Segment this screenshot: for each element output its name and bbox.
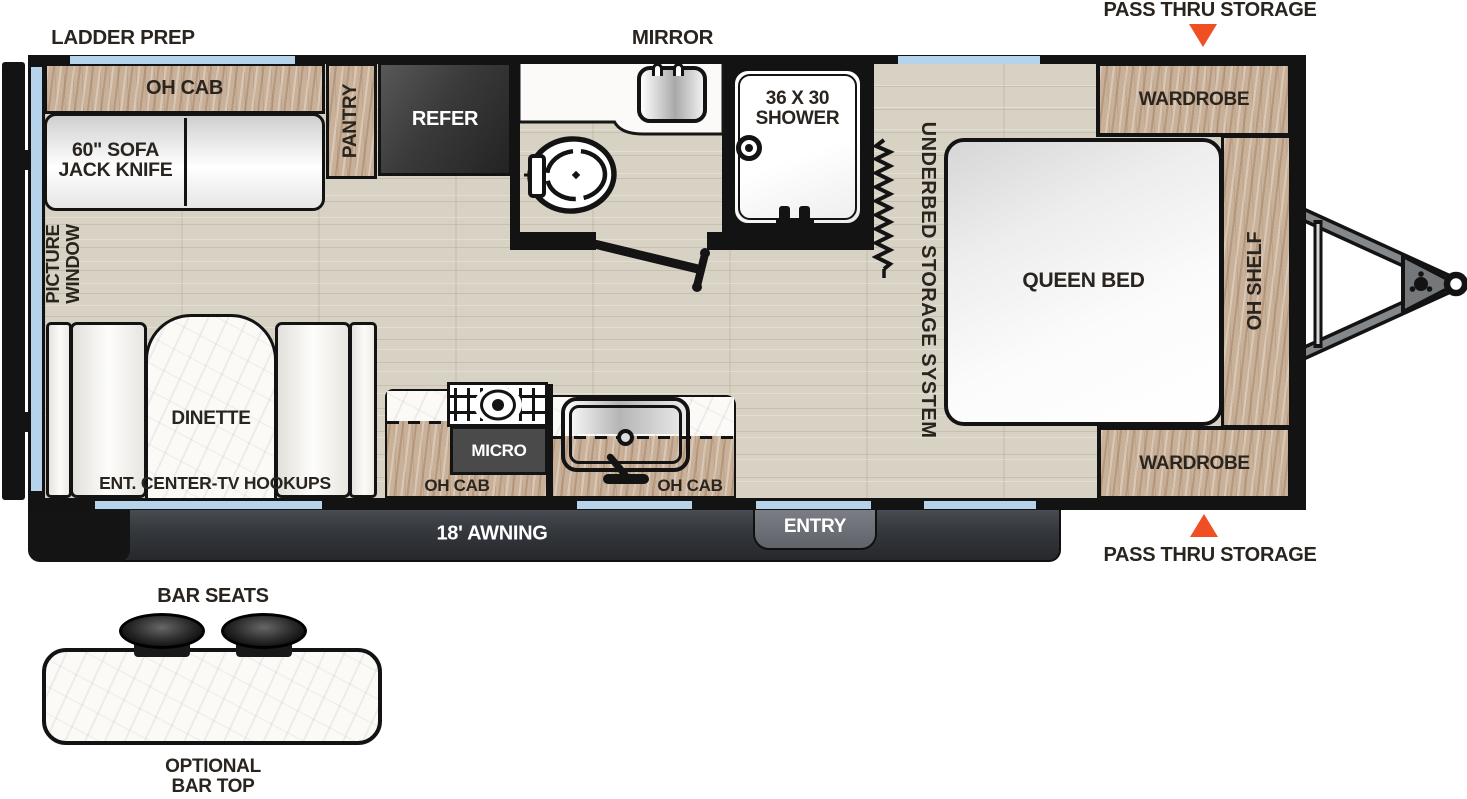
picture-window-label: PICTUREWINDOW xyxy=(43,204,85,324)
dinette-seat-left xyxy=(70,322,147,498)
window-strip xyxy=(70,56,295,64)
wall-right xyxy=(1291,55,1306,510)
microwave: MICRO xyxy=(450,426,548,475)
privacy-curtain-icon xyxy=(872,138,896,280)
wardrobe-label: WARDROBE xyxy=(1101,454,1288,474)
dinette-seat-right xyxy=(275,322,351,498)
pass-thru-arrow-icon xyxy=(1189,24,1217,47)
oh-cab-right-label: OH CAB xyxy=(650,477,730,495)
bath-faucet-icon xyxy=(652,63,663,76)
queen-bed: QUEEN BED xyxy=(944,138,1223,426)
mirror-label: MIRROR xyxy=(595,27,750,49)
awning-bar: 18' AWNING xyxy=(45,506,1061,562)
window-strip xyxy=(95,501,322,509)
micro-label: MICRO xyxy=(453,442,545,460)
underbed-storage-label: UNDERBED STORAGE SYSTEM xyxy=(914,115,938,445)
bar-stool xyxy=(221,613,307,649)
rear-bumper xyxy=(2,62,25,500)
sofa-label: 60" SOFAJACK KNIFE xyxy=(47,140,184,181)
optional-bar-top-label: OPTIONALBAR TOP xyxy=(120,757,306,797)
door-handle-knob-icon xyxy=(692,282,702,292)
window-strip xyxy=(924,501,1036,509)
trailer-hitch xyxy=(1299,196,1467,372)
oh-shelf-label: OH SHELF xyxy=(1245,216,1269,346)
bar-top xyxy=(42,648,382,745)
wardrobe-top: WARDROBE xyxy=(1096,62,1292,137)
shower-label: 36 X 30SHOWER xyxy=(735,89,860,129)
shower-spout-icon xyxy=(776,218,814,225)
entry-door-window xyxy=(756,501,871,509)
refrigerator: REFER xyxy=(378,62,512,176)
oh-cab-left-label: OH CAB xyxy=(417,477,497,495)
refer-label: REFER xyxy=(381,109,509,130)
entry-door-tab: ENTRY xyxy=(753,506,877,550)
wardrobe-label: WARDROBE xyxy=(1100,90,1288,110)
pass-thru-arrow-icon xyxy=(1190,514,1218,537)
queen-bed-label: QUEEN BED xyxy=(948,270,1219,292)
sink-drain-icon xyxy=(617,429,634,446)
pass-thru-top-label: PASS THRU STORAGE xyxy=(1090,0,1330,21)
awning-label: 18' AWNING xyxy=(412,524,572,545)
bar-seats-label: BAR SEATS xyxy=(120,586,306,607)
bathroom-door-jamb xyxy=(707,232,723,250)
wardrobe-bottom: WARDROBE xyxy=(1097,426,1292,500)
sofa-cushion-divider xyxy=(184,118,187,206)
window-strip xyxy=(577,501,692,509)
bath-faucet-icon xyxy=(673,63,684,76)
ladder-prep-label: LADDER PREP xyxy=(38,27,208,49)
pass-thru-bottom-label: PASS THRU STORAGE xyxy=(1090,545,1330,566)
shower-head-icon xyxy=(745,144,753,152)
oh-cab-label: OH CAB xyxy=(47,78,322,99)
dinette-backrest-left xyxy=(46,322,72,498)
faucet-bar-icon xyxy=(603,474,649,484)
stove-cooktop xyxy=(447,382,548,427)
dinette-label: DINETTE xyxy=(148,409,274,429)
ent-center-label: ENT. CENTER-TV HOOKUPS xyxy=(85,474,345,492)
pantry-label: PANTRY xyxy=(341,66,363,176)
bathroom-wall-bottom xyxy=(510,232,596,250)
entry-label: ENTRY xyxy=(755,517,875,537)
dinette-backrest-right xyxy=(349,322,377,498)
overhead-cabinet-sofa: OH CAB xyxy=(44,63,325,114)
picture-window xyxy=(31,67,42,491)
toilet xyxy=(524,132,624,220)
bath-sink xyxy=(637,66,707,123)
jackknife-sofa: 60" SOFAJACK KNIFE xyxy=(44,113,325,211)
rv-floorplan: OH CAB 60" SOFAJACK KNIFE PICTUREWINDOW … xyxy=(0,0,1467,799)
burner-center-icon xyxy=(492,399,504,411)
bar-stool xyxy=(119,613,205,649)
window-strip xyxy=(898,56,1040,64)
bathroom-wall-left xyxy=(510,62,520,250)
